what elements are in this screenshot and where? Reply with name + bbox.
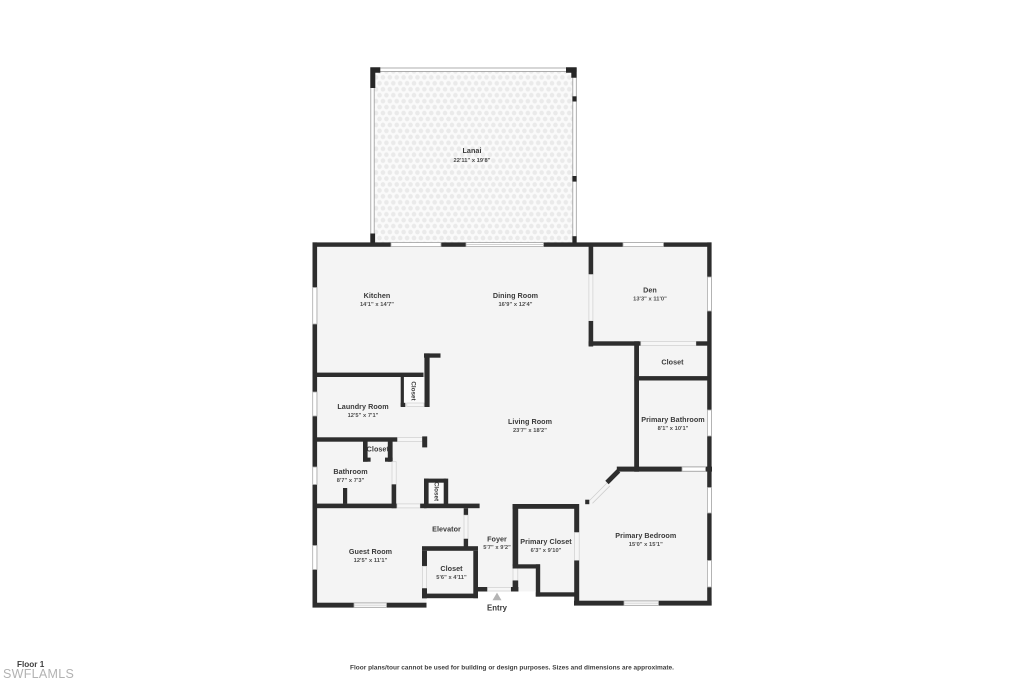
svg-text:Primary Bathroom: Primary Bathroom [641, 415, 705, 424]
svg-text:Primary Bedroom: Primary Bedroom [615, 531, 676, 540]
svg-text:Living Room: Living Room [508, 417, 552, 426]
svg-text:Closet: Closet [661, 358, 684, 367]
svg-text:Closet: Closet [432, 482, 439, 502]
svg-text:6'3" x 9'10": 6'3" x 9'10" [531, 548, 562, 554]
svg-text:Closet: Closet [440, 564, 463, 573]
svg-text:Bathroom: Bathroom [333, 467, 367, 476]
svg-text:Primary Closet: Primary Closet [520, 537, 572, 546]
svg-text:Elevator: Elevator [432, 525, 461, 534]
svg-text:Floor plans/tour cannot be use: Floor plans/tour cannot be used for buil… [350, 665, 674, 672]
svg-text:Closet: Closet [367, 445, 390, 454]
svg-text:13'3" x 11'0": 13'3" x 11'0" [633, 297, 667, 303]
svg-text:5'7" x 9'2": 5'7" x 9'2" [483, 545, 511, 551]
svg-text:Den: Den [643, 286, 657, 295]
svg-text:22'11" x 19'8": 22'11" x 19'8" [454, 158, 491, 164]
svg-text:23'7" x 18'2": 23'7" x 18'2" [513, 428, 547, 434]
svg-text:Laundry Room: Laundry Room [337, 402, 388, 411]
svg-text:SWFLAMLS: SWFLAMLS [3, 667, 74, 681]
svg-text:12'5" x 11'1": 12'5" x 11'1" [354, 558, 388, 564]
svg-text:16'9" x 12'4": 16'9" x 12'4" [498, 302, 532, 308]
svg-text:Dining Room: Dining Room [493, 291, 538, 300]
svg-text:Lanai: Lanai [462, 146, 481, 155]
svg-text:15'0" x 15'1": 15'0" x 15'1" [629, 542, 663, 548]
svg-text:14'1" x 14'7": 14'1" x 14'7" [360, 302, 394, 308]
svg-text:Closet: Closet [409, 381, 416, 401]
svg-text:12'5" x 7'1": 12'5" x 7'1" [348, 413, 379, 419]
svg-text:8'1" x 10'1": 8'1" x 10'1" [658, 426, 689, 432]
svg-text:5'6" x 4'11": 5'6" x 4'11" [436, 575, 467, 581]
svg-text:Entry: Entry [487, 604, 508, 613]
svg-text:Guest Room: Guest Room [349, 547, 392, 556]
svg-text:8'7" x 7'3": 8'7" x 7'3" [337, 478, 365, 484]
svg-text:Kitchen: Kitchen [364, 291, 391, 300]
svg-text:Foyer: Foyer [487, 535, 507, 544]
